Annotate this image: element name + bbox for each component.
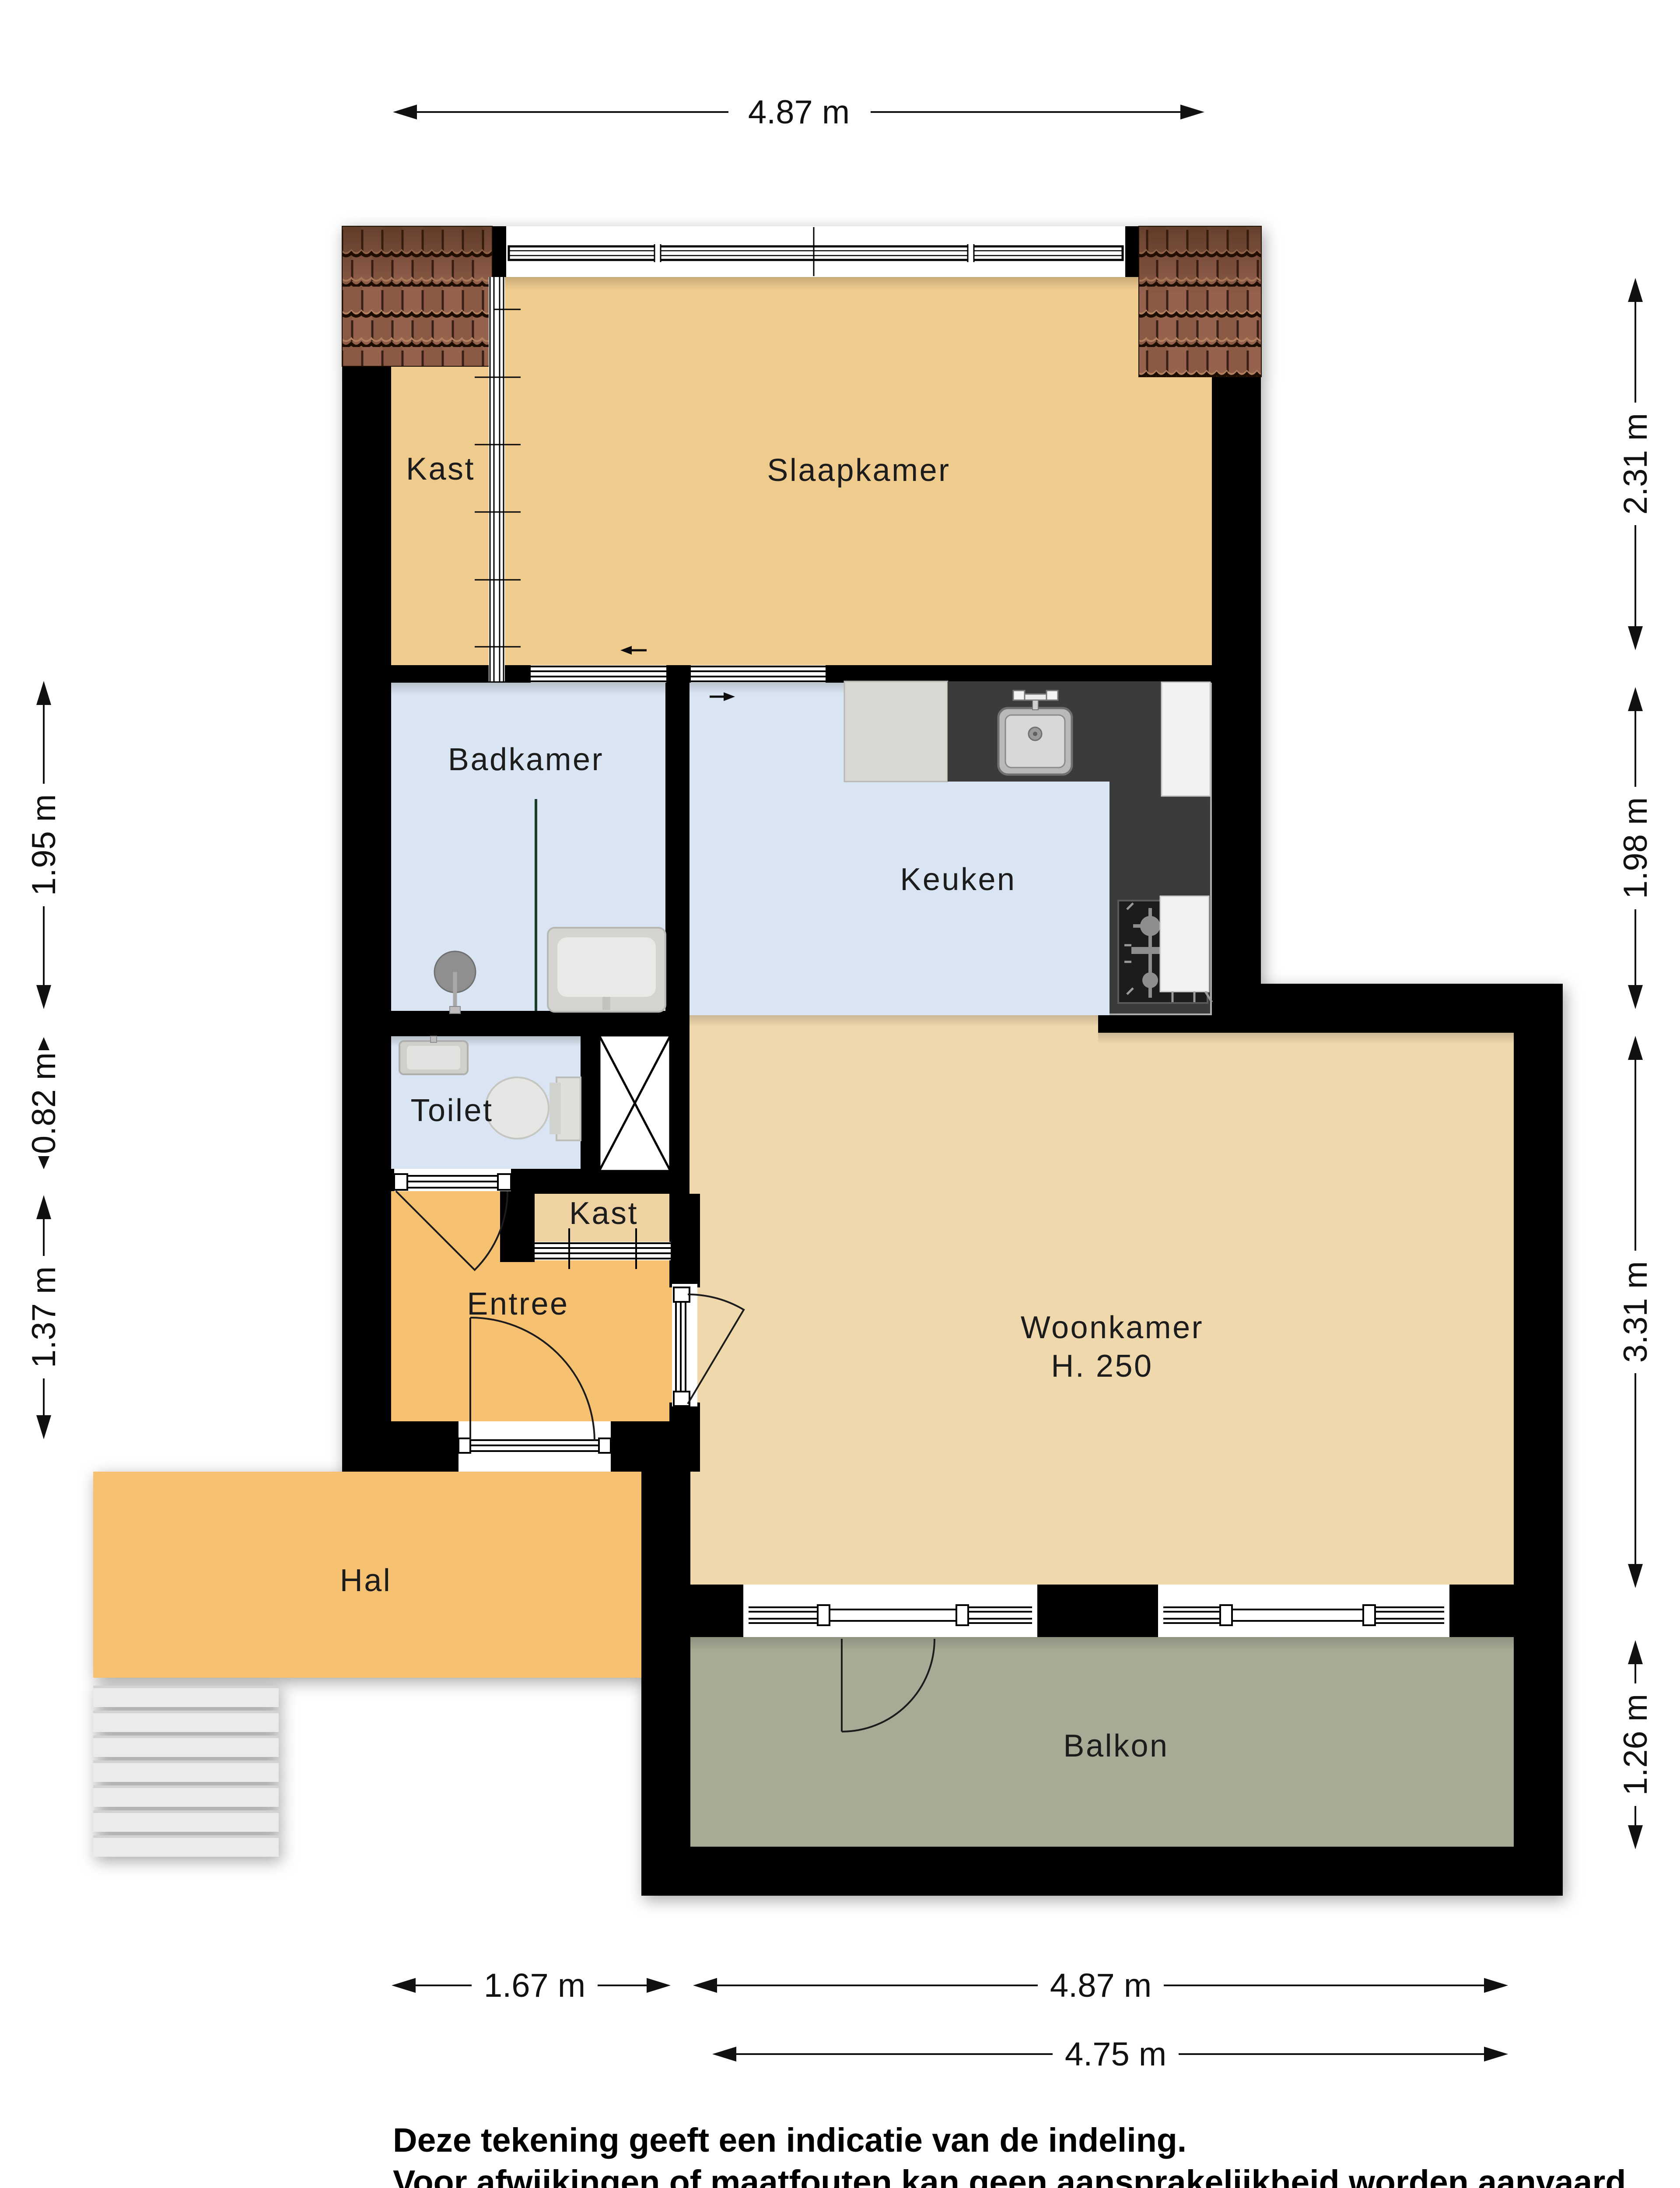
svg-text:4.75 m: 4.75 m <box>1065 2036 1166 2073</box>
svg-text:Kast: Kast <box>406 452 475 487</box>
svg-text:Badkamer: Badkamer <box>448 742 604 777</box>
svg-text:Voor afwijkingen of maatfoute: Voor afwijkingen of maatfouten kan geen … <box>393 2163 1635 2188</box>
svg-text:1.26 m: 1.26 m <box>1617 1694 1654 1795</box>
svg-text:Kast: Kast <box>569 1196 638 1231</box>
svg-text:H. 250: H. 250 <box>1051 1349 1153 1384</box>
svg-text:3.31 m: 3.31 m <box>1617 1261 1654 1363</box>
svg-text:1.98 m: 1.98 m <box>1617 797 1654 899</box>
svg-text:Balkon: Balkon <box>1063 1729 1169 1764</box>
svg-text:4.87 m: 4.87 m <box>1050 1967 1151 2004</box>
svg-text:1.67 m: 1.67 m <box>484 1967 585 2004</box>
svg-text:Slaapkamer: Slaapkamer <box>767 453 950 488</box>
svg-text:Keuken: Keuken <box>900 862 1016 897</box>
svg-text:Woonkamer: Woonkamer <box>1021 1310 1204 1345</box>
svg-text:4.87 m: 4.87 m <box>748 94 850 131</box>
svg-text:Deze tekening geeft een indica: Deze tekening geeft een indicatie van de… <box>393 2121 1186 2159</box>
svg-text:0.82 m: 0.82 m <box>25 1052 63 1154</box>
svg-text:1.37 m: 1.37 m <box>25 1266 63 1368</box>
svg-text:2.31 m: 2.31 m <box>1617 413 1654 515</box>
svg-text:Toilet: Toilet <box>410 1093 493 1128</box>
svg-text:Entree: Entree <box>467 1287 569 1322</box>
svg-text:1.95 m: 1.95 m <box>25 794 63 896</box>
svg-text:Hal: Hal <box>340 1563 392 1598</box>
